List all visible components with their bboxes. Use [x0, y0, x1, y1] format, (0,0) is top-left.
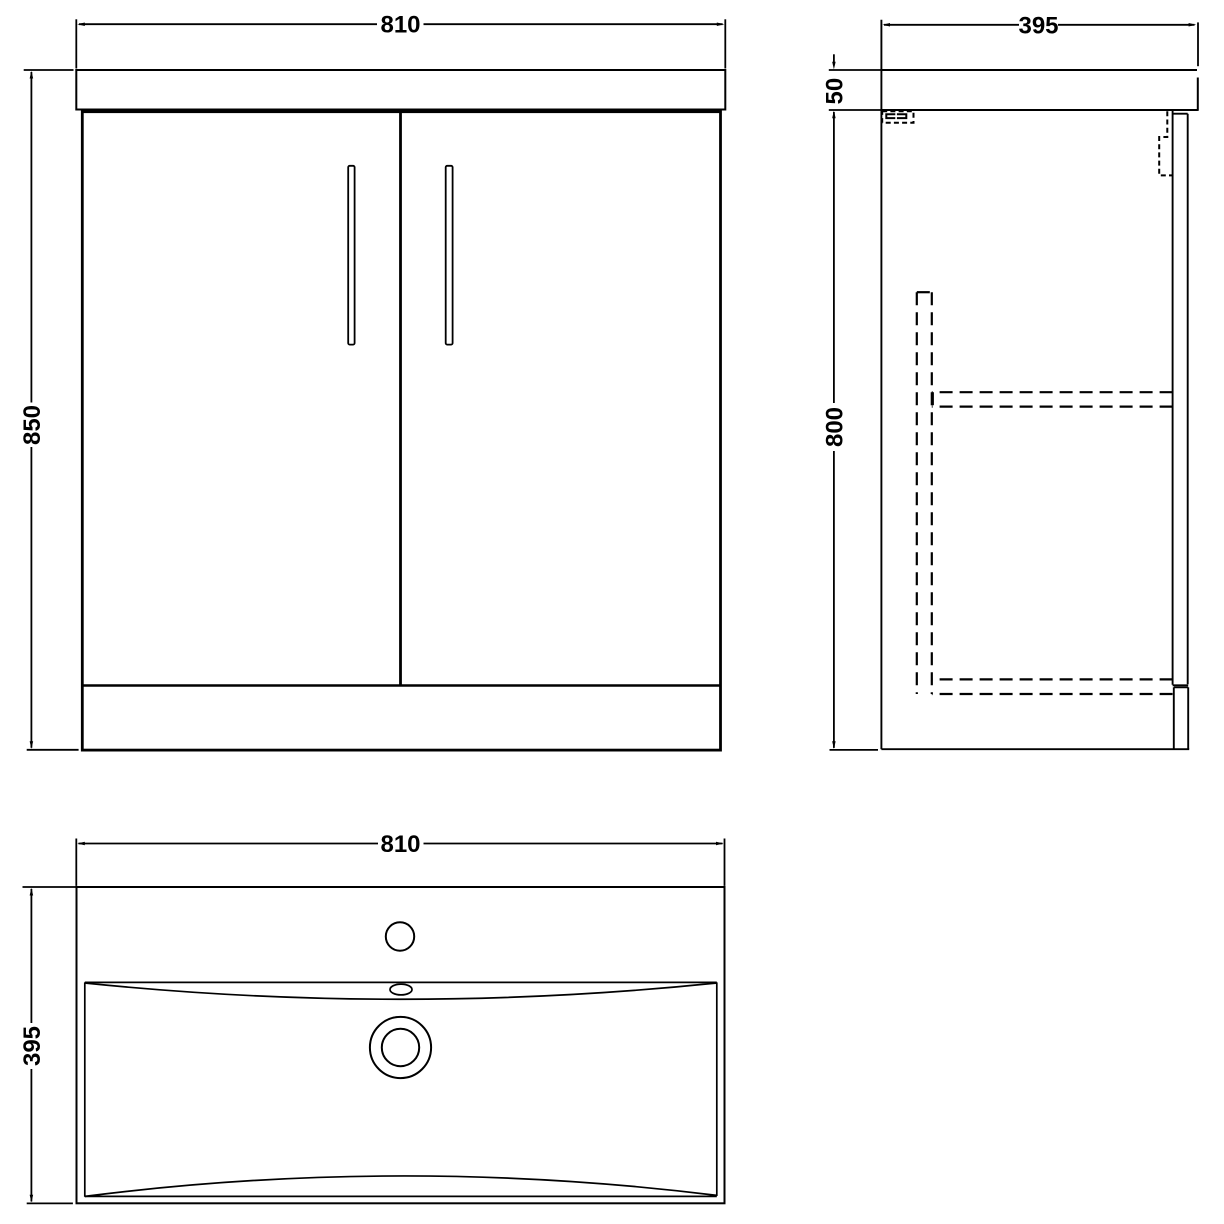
svg-text:50: 50 — [822, 78, 849, 105]
svg-text:810: 810 — [380, 831, 420, 858]
svg-text:850: 850 — [19, 405, 46, 445]
svg-text:800: 800 — [822, 407, 849, 447]
svg-text:810: 810 — [380, 12, 420, 39]
svg-text:395: 395 — [19, 1026, 46, 1066]
svg-text:395: 395 — [1018, 12, 1058, 39]
